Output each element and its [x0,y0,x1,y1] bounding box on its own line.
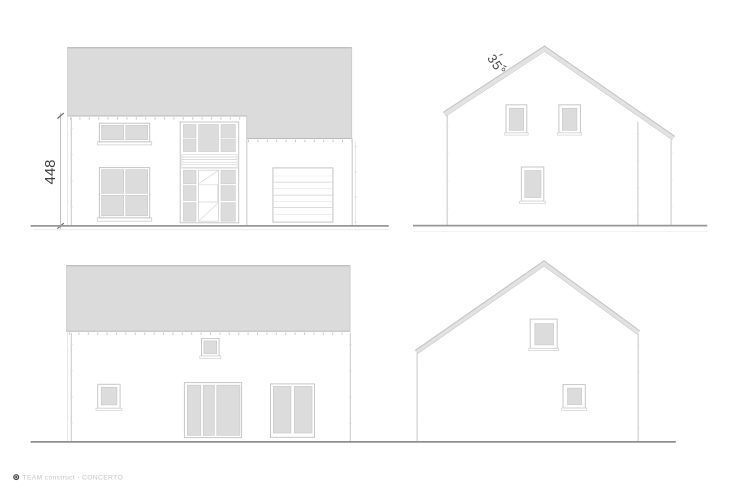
svg-text:448: 448 [42,159,59,184]
svg-text:TEAM construct - CONCERTO: TEAM construct - CONCERTO [23,475,124,482]
